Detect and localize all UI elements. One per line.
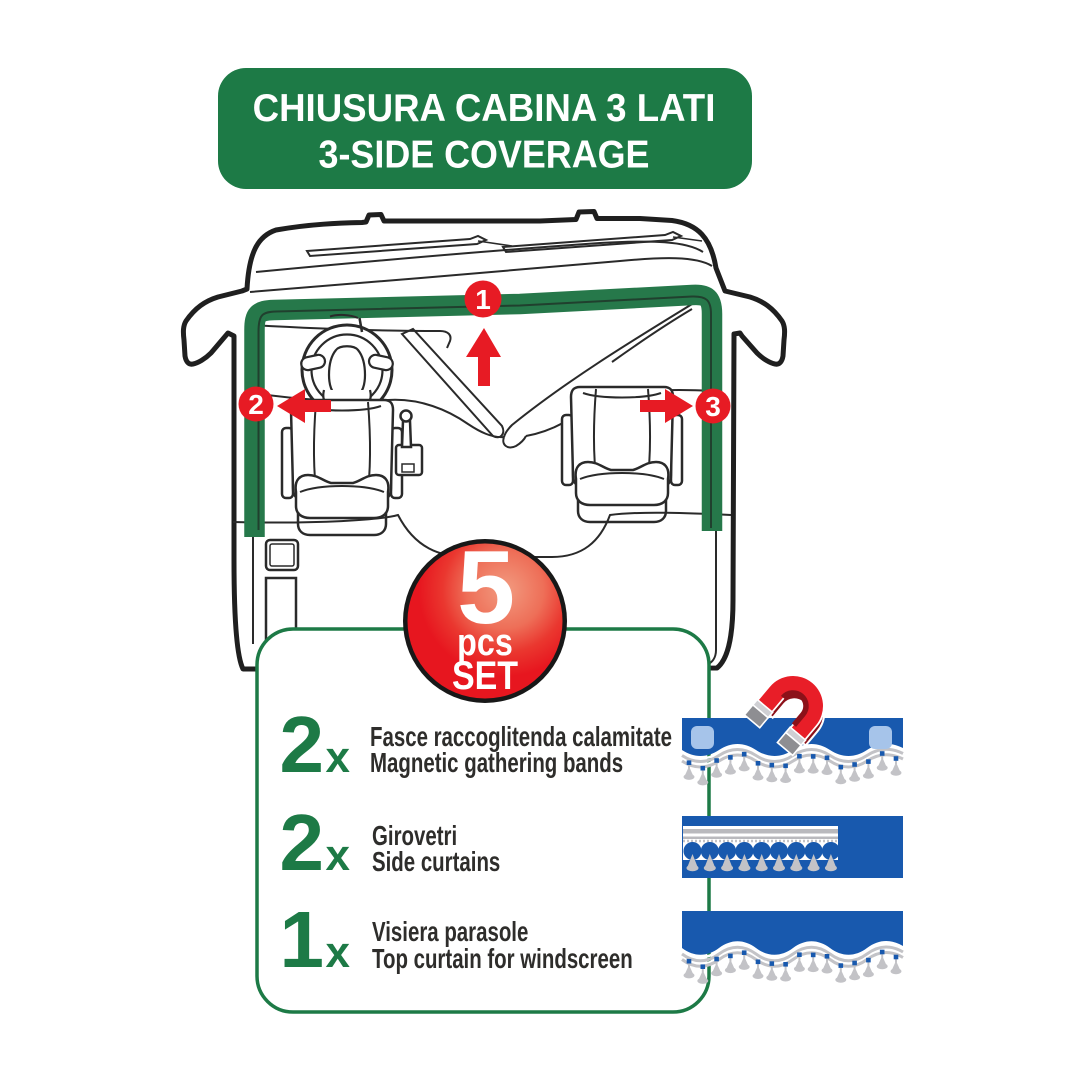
svg-text:x: x xyxy=(326,831,351,880)
svg-text:x: x xyxy=(326,928,351,977)
svg-text:Magnetic gathering bands: Magnetic gathering bands xyxy=(370,748,623,779)
svg-text:x: x xyxy=(326,733,351,782)
svg-text:1: 1 xyxy=(475,284,491,315)
svg-text:3-SIDE COVERAGE: 3-SIDE COVERAGE xyxy=(319,132,650,176)
svg-text:2: 2 xyxy=(280,798,325,887)
svg-text:Top curtain for windscreen: Top curtain for windscreen xyxy=(372,944,633,975)
svg-text:1: 1 xyxy=(280,895,325,984)
svg-text:Side curtains: Side curtains xyxy=(372,847,500,878)
svg-text:SET: SET xyxy=(452,652,518,697)
svg-text:CHIUSURA CABINA 3 LATI: CHIUSURA CABINA 3 LATI xyxy=(253,87,716,130)
svg-text:2: 2 xyxy=(280,700,325,789)
svg-text:3: 3 xyxy=(705,391,721,422)
svg-text:2: 2 xyxy=(248,389,264,420)
